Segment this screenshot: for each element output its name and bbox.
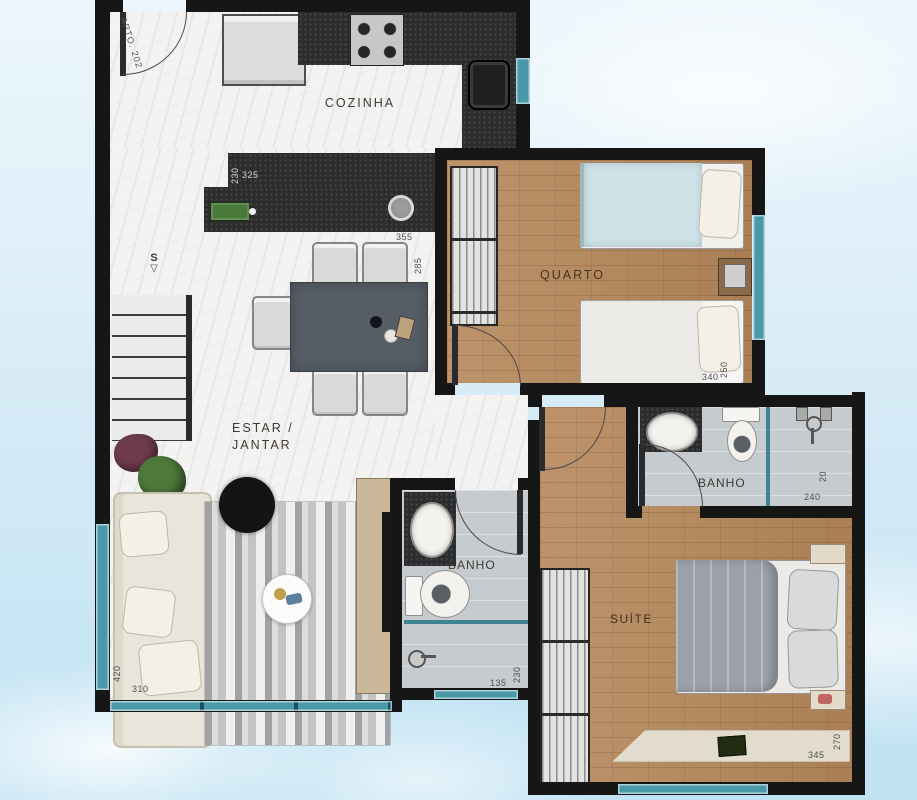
window xyxy=(110,701,392,711)
shower-head-icon xyxy=(408,650,426,668)
shower-head-icon xyxy=(806,416,822,432)
wall xyxy=(390,478,402,700)
kitchen-sink xyxy=(468,60,510,110)
dimension-label: 270 xyxy=(832,722,843,750)
dining-chair xyxy=(312,368,358,416)
pillow xyxy=(786,569,839,632)
wall xyxy=(604,395,865,407)
cutting-board xyxy=(210,202,250,221)
wall xyxy=(528,395,542,407)
dimension-label: 310 xyxy=(132,684,162,694)
table-decor xyxy=(370,316,382,328)
bath-sink xyxy=(410,502,454,558)
wall xyxy=(518,478,540,490)
blue-blanket xyxy=(580,163,702,247)
nightstand-decor xyxy=(818,694,832,704)
round-pouf xyxy=(219,477,275,533)
staircase xyxy=(112,295,192,441)
dining-chair xyxy=(252,296,294,350)
dimension-label: 230 xyxy=(230,156,241,184)
shower-fixture xyxy=(820,407,832,421)
window xyxy=(96,524,109,690)
wall xyxy=(520,383,765,395)
dimension-label: 325 xyxy=(242,170,276,180)
living-dining-label: ESTAR / JANTAR xyxy=(232,420,342,454)
stove-cooktop xyxy=(350,14,404,66)
pillow xyxy=(787,629,839,689)
floor-plan-canvas: APTO. 202 COZINHA QUARTO ESTAR / JANTAR … xyxy=(0,0,917,800)
wall xyxy=(626,407,638,518)
wall xyxy=(626,506,642,518)
dimension-label: 355 xyxy=(396,232,426,242)
wall xyxy=(186,0,530,12)
wall xyxy=(852,392,865,795)
shower-glass xyxy=(404,620,528,624)
lamp xyxy=(724,264,746,288)
window xyxy=(753,215,765,340)
refrigerator xyxy=(222,14,306,86)
wall xyxy=(752,340,765,383)
hallway-floor xyxy=(435,395,528,490)
shower-glass xyxy=(766,407,770,506)
duvet xyxy=(676,560,778,692)
toilet xyxy=(727,420,757,462)
wall xyxy=(516,104,530,150)
coffee-table-decor xyxy=(274,588,286,600)
dimension-label: 420 xyxy=(112,650,123,682)
window xyxy=(516,58,530,104)
wardrobe xyxy=(450,166,498,326)
wall xyxy=(528,420,540,795)
window xyxy=(434,690,518,699)
wall xyxy=(435,160,447,395)
wall xyxy=(700,506,865,518)
dimension-label: 285 xyxy=(413,244,424,274)
wall xyxy=(95,0,123,12)
wall xyxy=(752,160,765,215)
wardrobe xyxy=(540,568,590,786)
wall xyxy=(402,478,455,490)
pillow xyxy=(698,169,743,240)
wall xyxy=(435,148,765,160)
wall xyxy=(516,12,530,58)
dimension-label: 20 xyxy=(818,458,829,482)
shower-arm xyxy=(811,428,814,444)
kitchen-label: COZINHA xyxy=(300,96,420,110)
toilet xyxy=(420,570,470,618)
dimension-label: 240 xyxy=(804,492,834,502)
bath-social-label: BANHO xyxy=(448,558,512,572)
bench-tray xyxy=(717,735,746,757)
dimension-label: 230 xyxy=(512,655,523,683)
dining-chair xyxy=(362,368,408,416)
island-bowl-sink xyxy=(388,195,414,221)
bedroom-label: QUARTO xyxy=(540,268,616,282)
nightstand xyxy=(810,544,846,564)
dimension-label: 345 xyxy=(808,750,838,760)
bath-suite-label: BANHO xyxy=(698,476,762,490)
shower-arm xyxy=(421,655,436,658)
kitchen-counter xyxy=(298,12,516,65)
window xyxy=(618,784,768,794)
sofa-cushion xyxy=(121,585,176,639)
stairs-down-arrow-icon: ▽ xyxy=(144,263,164,274)
suite-label: SUÍTE xyxy=(610,612,670,626)
sofa-cushion xyxy=(118,510,170,558)
dimension-label: 250 xyxy=(719,350,730,378)
